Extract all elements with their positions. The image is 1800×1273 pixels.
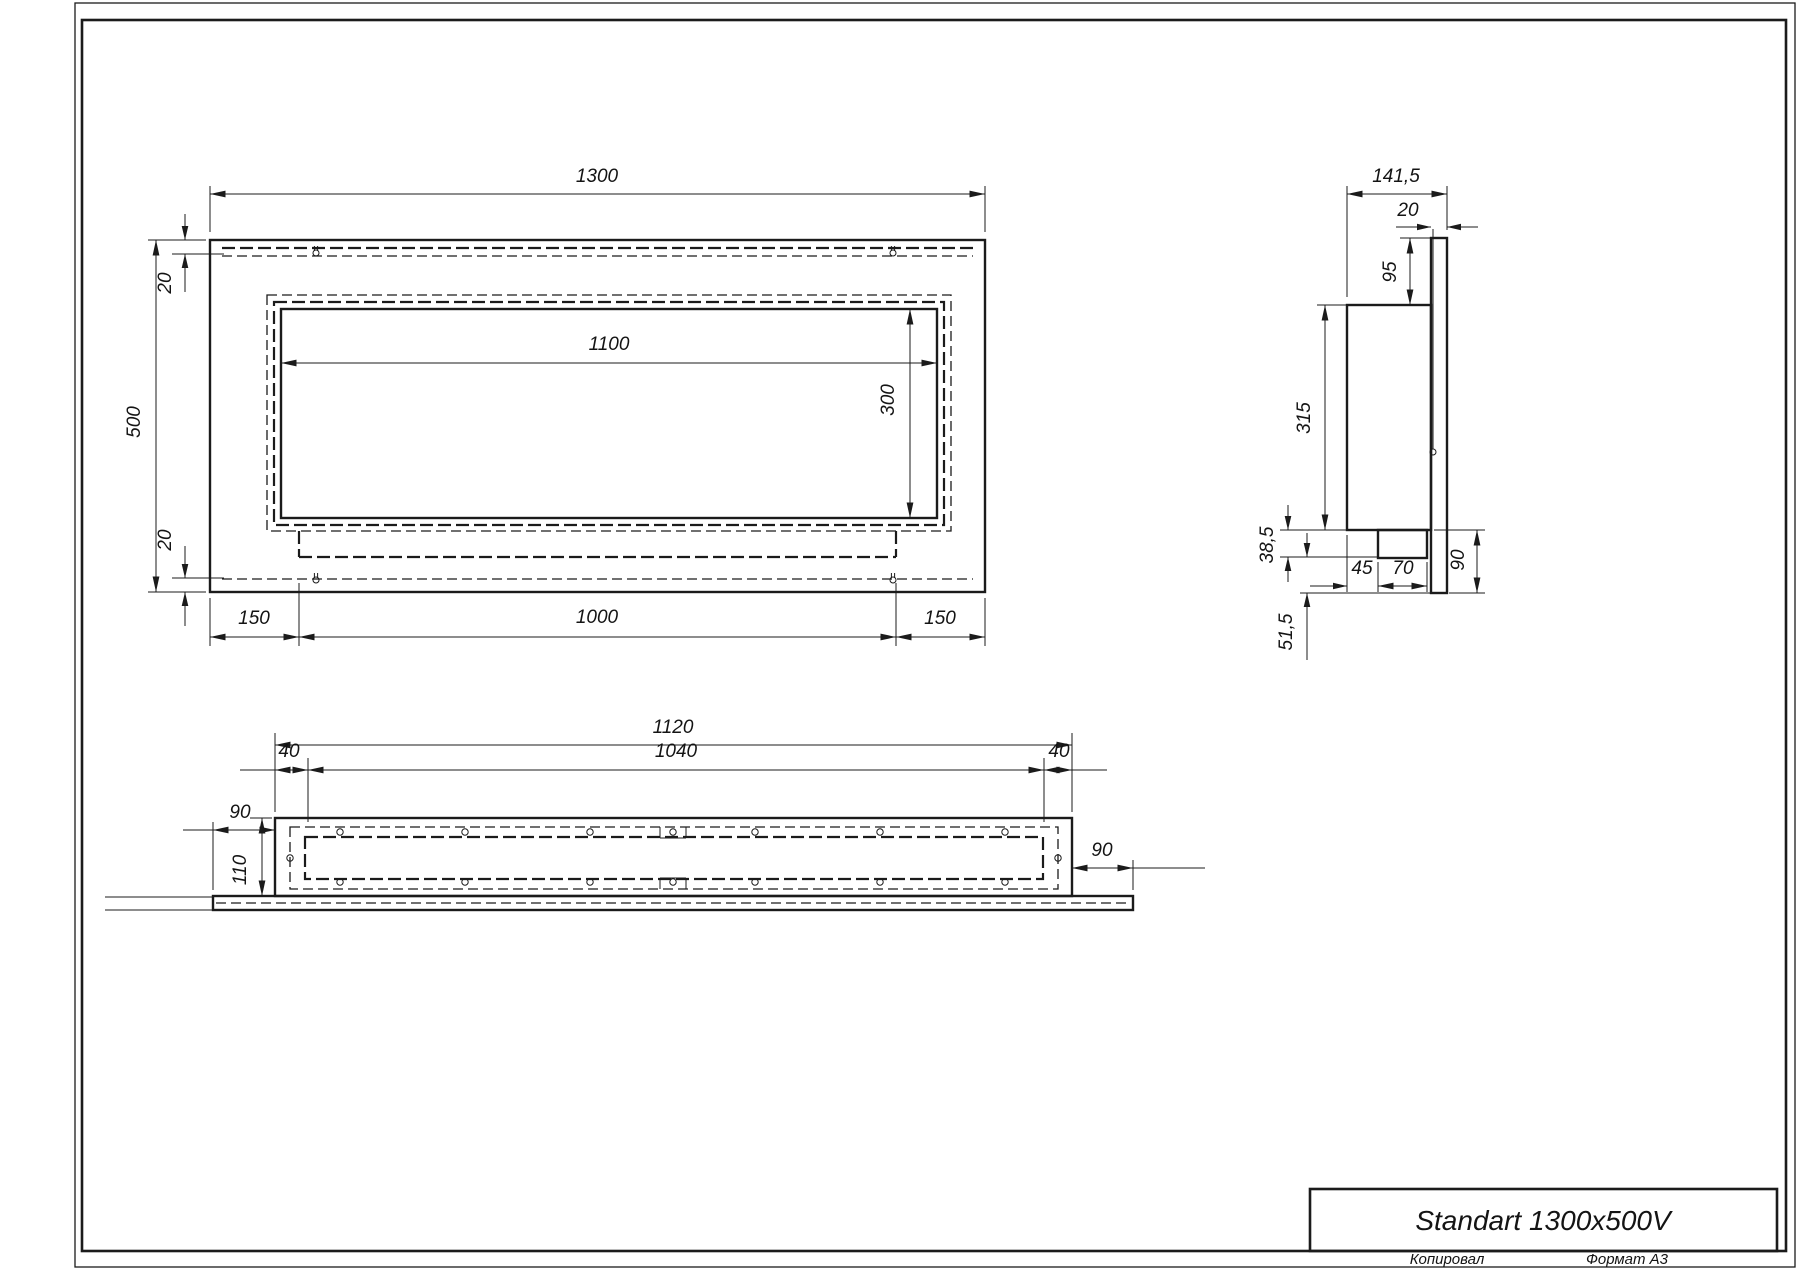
bottom-view: 1120 40 1040 40 90 110 90 xyxy=(105,717,1205,910)
dim-side-tray-width: 70 xyxy=(1392,558,1414,579)
dim-side-tray-offset: 45 xyxy=(1351,558,1373,579)
dim-bottom-flange-left: 90 xyxy=(229,802,251,823)
title-block-product-name: Standart 1300x500V xyxy=(1415,1205,1673,1236)
dim-bottom-opening-width: 1040 xyxy=(655,741,698,762)
side-view-dimensions: 141,5 20 95 315 38,5 xyxy=(1257,166,1485,660)
front-view-geometry xyxy=(210,240,985,592)
dim-side-bottom-clearance: 51,5 xyxy=(1276,613,1297,650)
bottom-view-geometry xyxy=(105,818,1133,910)
side-view-geometry xyxy=(1347,229,1447,593)
drawing-sheet: 1300 500 20 20 1100 300 xyxy=(0,0,1800,1273)
dim-side-flange-bottom: 90 xyxy=(1448,549,1469,571)
dim-side-flange-thickness: 20 xyxy=(1396,200,1419,221)
screw-holes-top xyxy=(337,829,1008,835)
dim-bottom-margin-left: 40 xyxy=(278,741,300,762)
dim-front-width: 1300 xyxy=(576,166,619,187)
dim-front-inset-bottom: 20 xyxy=(155,529,176,552)
dim-front-bottom-right: 150 xyxy=(924,608,956,629)
dim-side-body-height: 315 xyxy=(1294,402,1315,434)
dim-side-depth: 141,5 xyxy=(1372,166,1420,187)
title-block-format-label: Формат А3 xyxy=(1586,1251,1669,1268)
dim-front-height: 500 xyxy=(124,406,145,438)
dim-front-bottom-center: 1000 xyxy=(576,607,619,628)
page-frame xyxy=(75,3,1795,1267)
bottom-view-dimensions: 1120 40 1040 40 90 110 90 xyxy=(183,717,1205,896)
dim-front-inset-top: 20 xyxy=(155,272,176,295)
dim-side-tray-height: 38,5 xyxy=(1257,526,1278,563)
dim-side-top-to-body: 95 xyxy=(1380,261,1401,283)
screw-holes-bottom xyxy=(337,879,1008,885)
keyhole-slot-icon xyxy=(890,573,896,583)
dim-bottom-flange-right: 90 xyxy=(1091,840,1113,861)
dim-bottom-margin-right: 40 xyxy=(1048,741,1070,762)
keyhole-slot-icon xyxy=(313,573,319,583)
title-block: Standart 1300x500V Копировал Формат А3 xyxy=(1310,1189,1777,1268)
dim-opening-height: 300 xyxy=(878,384,899,416)
dim-opening-width: 1100 xyxy=(589,334,630,355)
title-block-copied-label: Копировал xyxy=(1410,1251,1485,1268)
dim-bottom-body-width: 1120 xyxy=(653,717,694,738)
front-view-dimensions: 1300 500 20 20 1100 300 xyxy=(124,166,985,646)
dim-front-bottom-left: 150 xyxy=(238,608,270,629)
front-view: 1300 500 20 20 1100 300 xyxy=(124,166,985,646)
dim-bottom-depth: 110 xyxy=(230,854,251,885)
technical-drawing-canvas: 1300 500 20 20 1100 300 xyxy=(0,0,1800,1273)
side-view: 141,5 20 95 315 38,5 xyxy=(1257,166,1485,660)
